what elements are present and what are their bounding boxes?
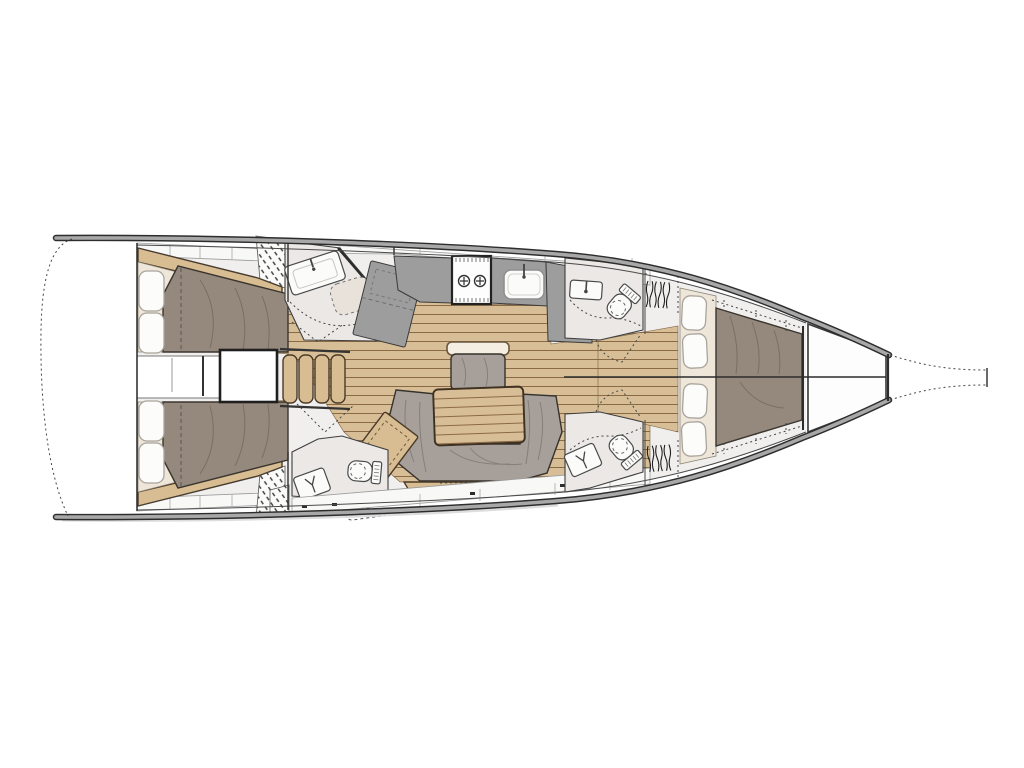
pillow (139, 313, 164, 353)
stove (452, 256, 491, 304)
saloon-table (433, 386, 525, 445)
floor-plan-drawing (0, 0, 1024, 768)
passage-band (137, 356, 220, 398)
bathroom-sink (569, 280, 602, 300)
transom-outline (41, 239, 72, 516)
boat-floor-plan (0, 0, 1024, 768)
seat-back-frame (447, 342, 509, 355)
aft-cabin-port (137, 236, 288, 353)
forward-seat (451, 354, 505, 390)
pillow (681, 295, 707, 330)
pillow (682, 333, 708, 368)
bowsprit (890, 355, 987, 400)
pillow (682, 383, 708, 418)
pillow (681, 421, 707, 456)
toilet (347, 459, 382, 484)
pillow (139, 443, 164, 483)
pillow (139, 271, 164, 311)
companionway-steps (280, 349, 350, 409)
aft-cabin-starboard (137, 401, 288, 518)
engine-box (220, 350, 277, 402)
pillow (139, 401, 164, 441)
